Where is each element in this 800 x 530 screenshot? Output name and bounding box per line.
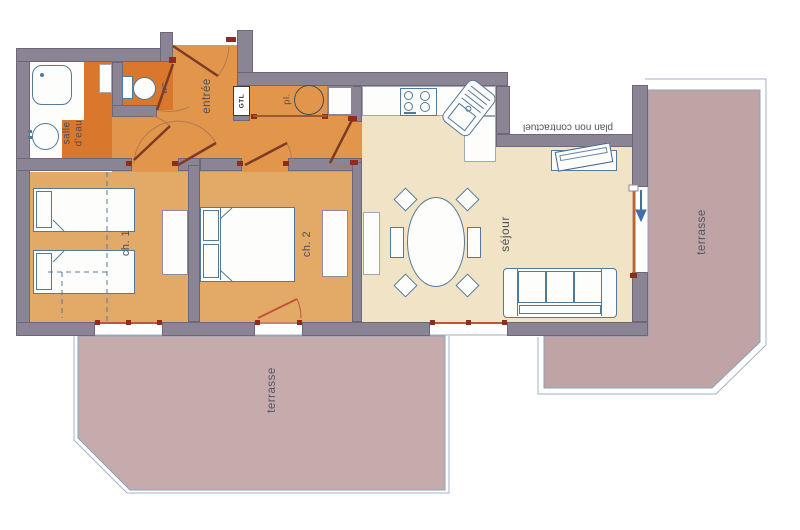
floor-plan: GTL	[0, 0, 800, 530]
bathroom-label-line1: salle	[62, 120, 74, 147]
bed-fold-marks	[53, 208, 232, 281]
entry-door-leaf	[173, 46, 218, 76]
ch1-door-leaf	[178, 143, 216, 165]
living-door-leaf	[330, 120, 352, 163]
ch2-door-leaf	[245, 143, 287, 165]
slider-jamb	[630, 273, 637, 278]
french-window-ch2	[255, 299, 302, 323]
slider-handle	[629, 185, 638, 191]
sliding-door	[629, 185, 646, 278]
wc-label: wc	[159, 82, 169, 94]
bedroom2-label: ch. 2	[301, 231, 313, 257]
door-leaves	[134, 46, 352, 165]
entry-label: entrée	[201, 78, 213, 114]
closet-label: pl.	[282, 93, 293, 105]
disclaimer-label: plan non contractuel	[523, 122, 613, 133]
bathroom-label: salle d'eau	[62, 120, 85, 147]
dashed-lines	[48, 172, 107, 322]
doors-windows-layer	[0, 0, 800, 530]
direction-arrow-icon	[636, 190, 646, 221]
windows	[95, 320, 507, 335]
living-room-label: séjour	[498, 216, 512, 252]
bathroom-label-line2: d'eau	[73, 120, 85, 147]
terrace-right-label: terrasse	[696, 209, 708, 255]
door-arcs	[134, 47, 352, 167]
terrace-bottom-label: terrasse	[266, 367, 278, 413]
bedroom1-label: ch. 1	[120, 230, 132, 256]
